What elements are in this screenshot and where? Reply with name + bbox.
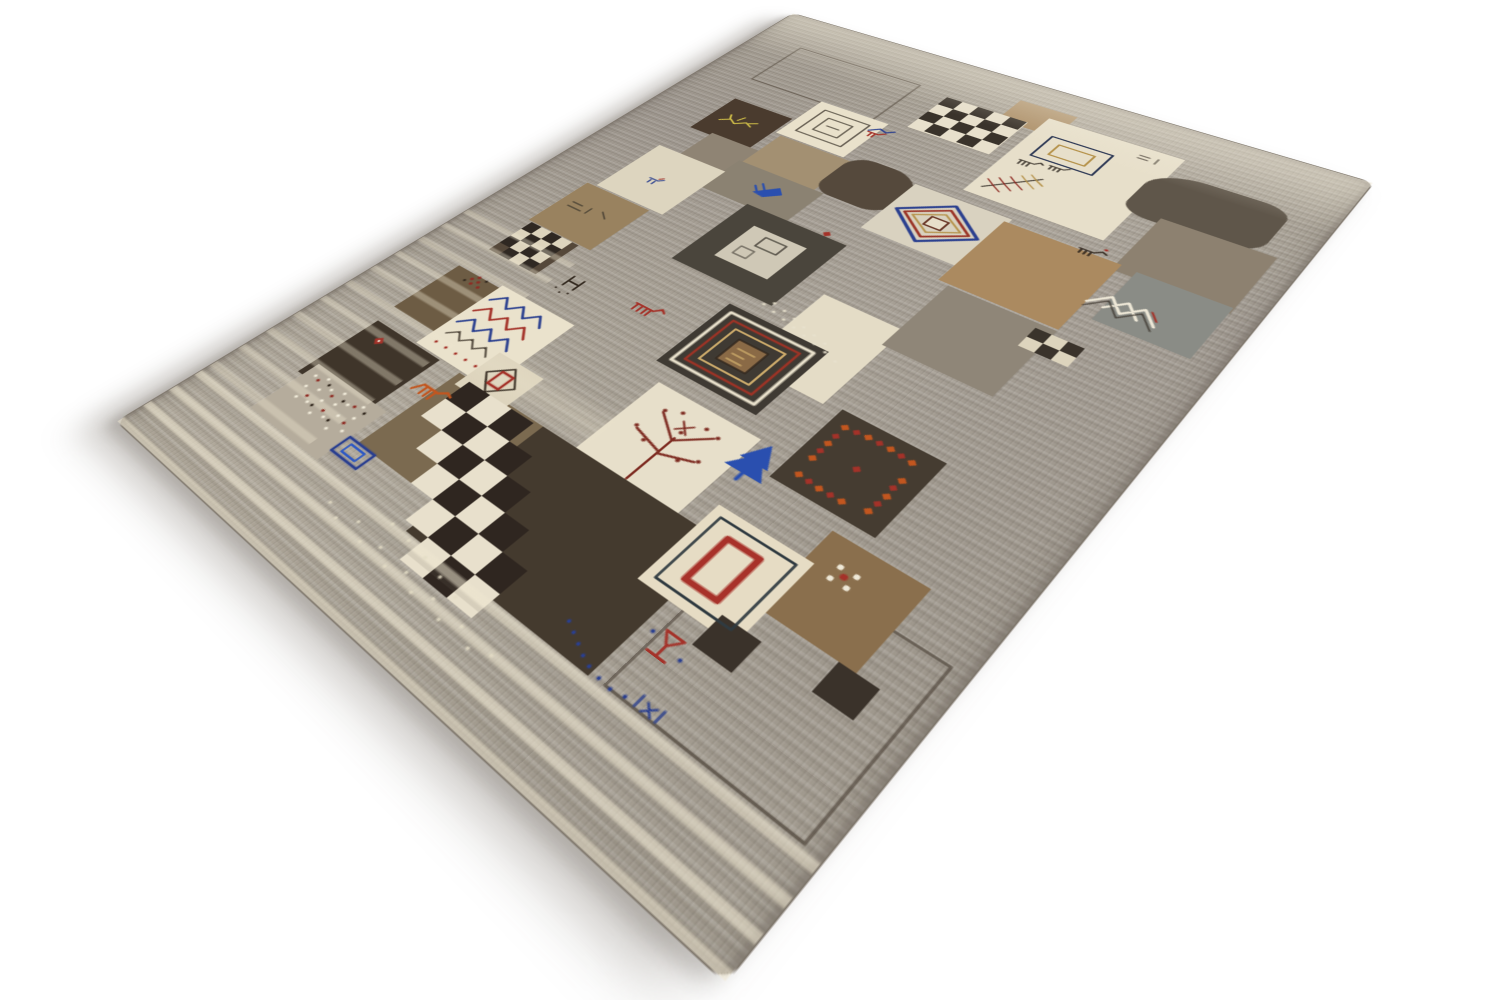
fleck-trail <box>435 617 442 623</box>
fleck-trail <box>408 590 415 595</box>
fleck-trail <box>771 310 777 314</box>
fleck-trail <box>488 653 495 659</box>
fleck-trail <box>464 645 471 651</box>
bird-motif <box>1104 249 1110 252</box>
fleck-trail <box>382 564 388 569</box>
fleck-trail <box>406 538 412 543</box>
dotted-border-square <box>769 409 947 538</box>
fleck-trail <box>333 515 339 520</box>
fleck-trail <box>327 500 333 505</box>
fleck-trail <box>430 596 437 601</box>
fleck-trail <box>458 624 465 630</box>
goblet-motif <box>649 628 656 634</box>
fleck-trail <box>355 519 361 524</box>
dot-trail <box>606 686 613 692</box>
fleck-trail <box>782 309 788 313</box>
tree-motif-blue <box>736 473 743 479</box>
photo-background <box>0 0 1500 1000</box>
small-dark-square <box>812 662 880 721</box>
animal-motif-red <box>630 299 666 321</box>
h-mark <box>554 286 558 288</box>
goblet-motif <box>647 630 685 662</box>
goblet-motif <box>677 657 684 663</box>
rug-photo <box>116 13 1375 984</box>
fleck-trail <box>403 570 409 575</box>
h-mark <box>566 292 570 294</box>
blue-rect-motif <box>341 444 364 461</box>
fleck-trail <box>377 545 383 550</box>
dot-trail <box>621 694 628 700</box>
fleck-trail <box>357 539 363 544</box>
fleck-trail <box>781 318 787 322</box>
dot-trail <box>595 675 602 681</box>
h-mark <box>557 291 561 293</box>
fleck-trail <box>390 522 396 527</box>
small-marks <box>634 696 665 723</box>
h-mark <box>563 277 585 290</box>
